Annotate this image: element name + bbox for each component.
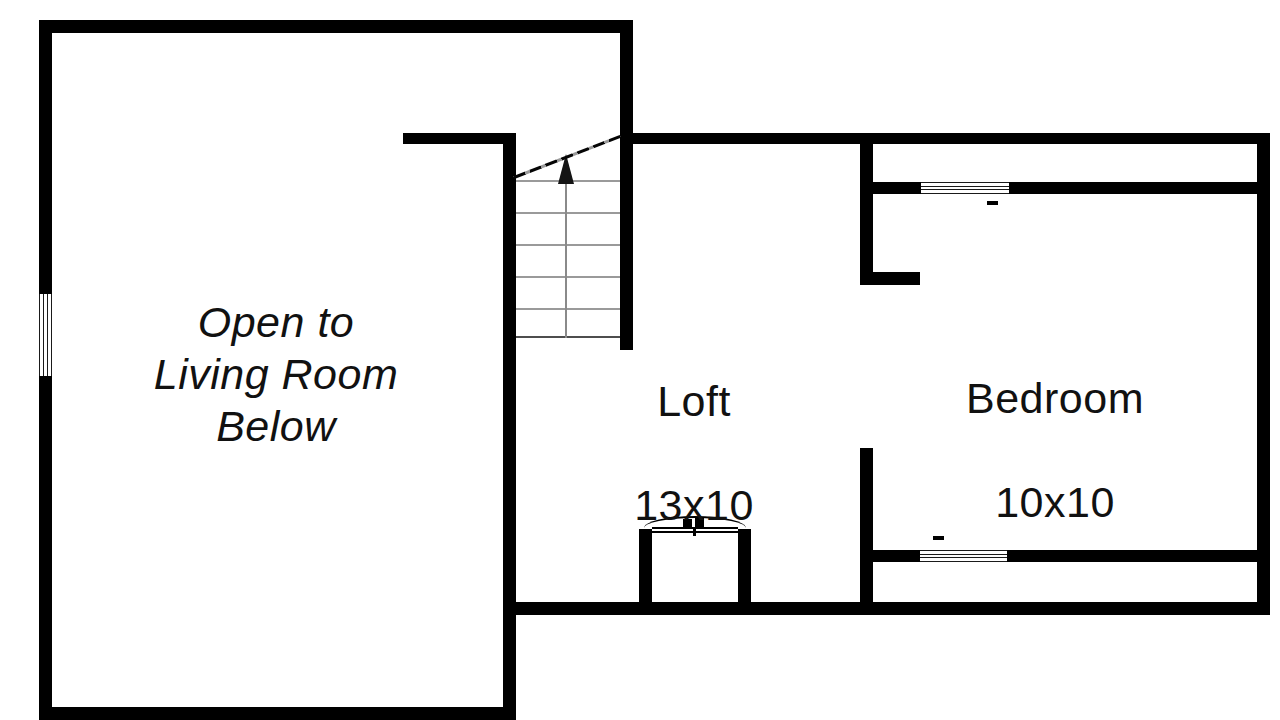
- wall-bedroom-inner-top-left: [870, 182, 920, 194]
- window-latch-mark: [987, 201, 998, 205]
- wall-open-room-right-upper: [620, 20, 633, 350]
- floor-plan: Open to Living Room Below Loft 13x10 Bed…: [0, 0, 1280, 720]
- bedroom-top-window: [920, 182, 1010, 194]
- stair-center-line: [565, 182, 567, 338]
- stair-tread: [516, 276, 620, 278]
- wall-open-room-left-upper: [39, 20, 52, 293]
- bedroom-dimensions: 10x10: [935, 476, 1175, 528]
- wall-open-room-top: [39, 20, 632, 33]
- wall-open-room-right-lower: [503, 133, 516, 720]
- stair-tread: [516, 212, 620, 214]
- wall-bedroom-left-upper: [860, 133, 873, 285]
- stair-tread: [516, 244, 620, 246]
- left-wall-window: [39, 292, 52, 378]
- bedroom-name: Bedroom: [935, 372, 1175, 424]
- loft-label: Loft 13x10: [594, 323, 794, 583]
- stair-tread: [516, 308, 620, 310]
- wall-open-room-left-lower: [39, 377, 52, 720]
- bedroom-label: Bedroom 10x10: [935, 320, 1175, 580]
- wall-open-room-bottom: [39, 707, 516, 720]
- wall-bedroom-inner-top-right: [1010, 182, 1258, 194]
- open-area-label: Open to Living Room Below: [95, 296, 457, 452]
- wall-loft-bedroom-top: [632, 133, 1270, 144]
- wall-bottom-main: [503, 602, 1270, 615]
- wall-bedroom-inner-bottom-left: [870, 550, 919, 562]
- loft-dimensions: 13x10: [594, 479, 794, 531]
- wall-stairwell-top: [403, 133, 516, 144]
- wall-bedroom-left-stub: [860, 272, 920, 285]
- wall-bedroom-left-lower: [860, 448, 873, 615]
- wall-right-exterior: [1257, 133, 1270, 615]
- loft-name: Loft: [594, 375, 794, 427]
